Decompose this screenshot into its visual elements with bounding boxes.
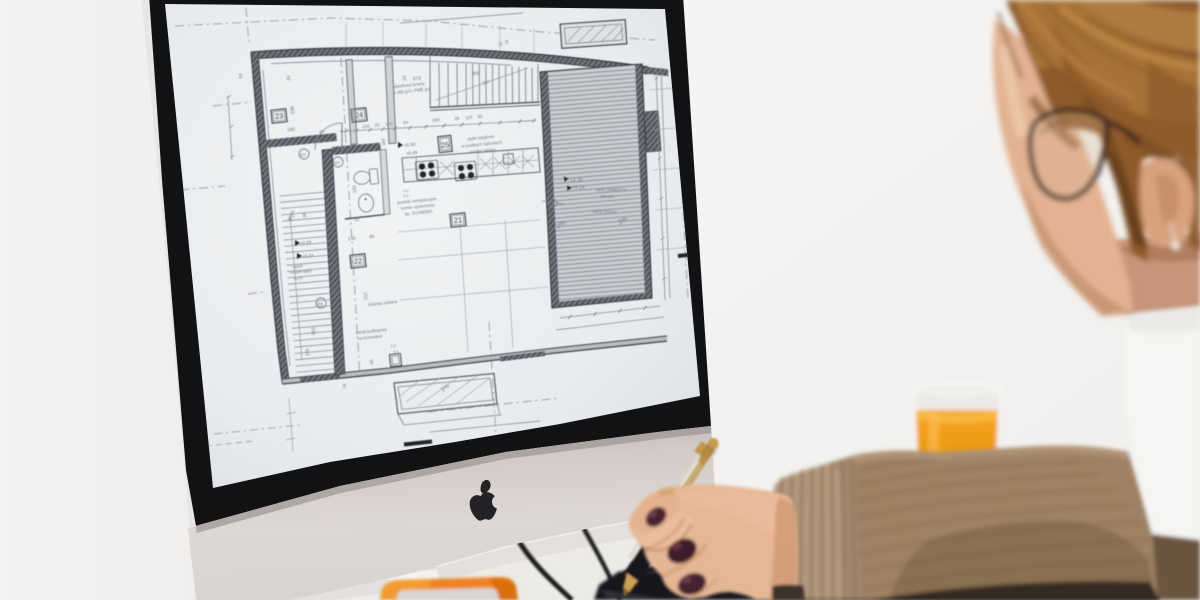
svg-text:2%: 2%: [305, 348, 312, 356]
svg-text:312: 312: [363, 292, 369, 301]
svg-text:24: 24: [238, 73, 244, 79]
svg-text:24: 24: [354, 110, 363, 120]
svg-text:573: 573: [413, 76, 422, 83]
svg-text:196: 196: [290, 105, 297, 114]
svg-text:120: 120: [362, 124, 370, 130]
svg-text:269: 269: [432, 117, 440, 123]
svg-text:459: 459: [471, 70, 480, 77]
svg-text:D8: D8: [317, 302, 323, 307]
svg-text:130: 130: [348, 236, 357, 242]
svg-text:k.1.: k.1.: [404, 193, 410, 198]
svg-text:+4.38: +4.38: [570, 178, 583, 184]
svg-text:24: 24: [402, 75, 408, 81]
svg-text:120: 120: [385, 121, 393, 127]
svg-text:183: 183: [287, 127, 296, 133]
svg-text:22: 22: [353, 256, 362, 266]
svg-text:23: 23: [274, 111, 283, 121]
svg-text:110: 110: [465, 115, 473, 121]
svg-text:wylot powietrzny: wylot powietrzny: [596, 187, 628, 192]
svg-text:99: 99: [302, 212, 308, 218]
svg-text:80: 80: [369, 234, 375, 240]
svg-text:k.1: k.1: [394, 350, 399, 354]
svg-text:25: 25: [440, 140, 449, 150]
svg-text:21: 21: [453, 215, 462, 225]
svg-text:uskok betonu: uskok betonu: [592, 209, 618, 214]
svg-text:352: 352: [311, 326, 318, 335]
svg-text:2%: 2%: [290, 210, 297, 218]
svg-text:24: 24: [286, 75, 292, 81]
svg-text:399: 399: [381, 138, 387, 146]
svg-text:D7: D7: [334, 161, 340, 166]
svg-text:k.c.: k.c.: [404, 188, 410, 193]
svg-text:k.2: k.2: [391, 344, 396, 348]
svg-text:+4.24: +4.24: [572, 185, 585, 191]
svg-text:193: 193: [352, 185, 358, 194]
svg-text:D7: D7: [300, 153, 306, 158]
svg-text:JW 100: JW 100: [600, 194, 615, 199]
